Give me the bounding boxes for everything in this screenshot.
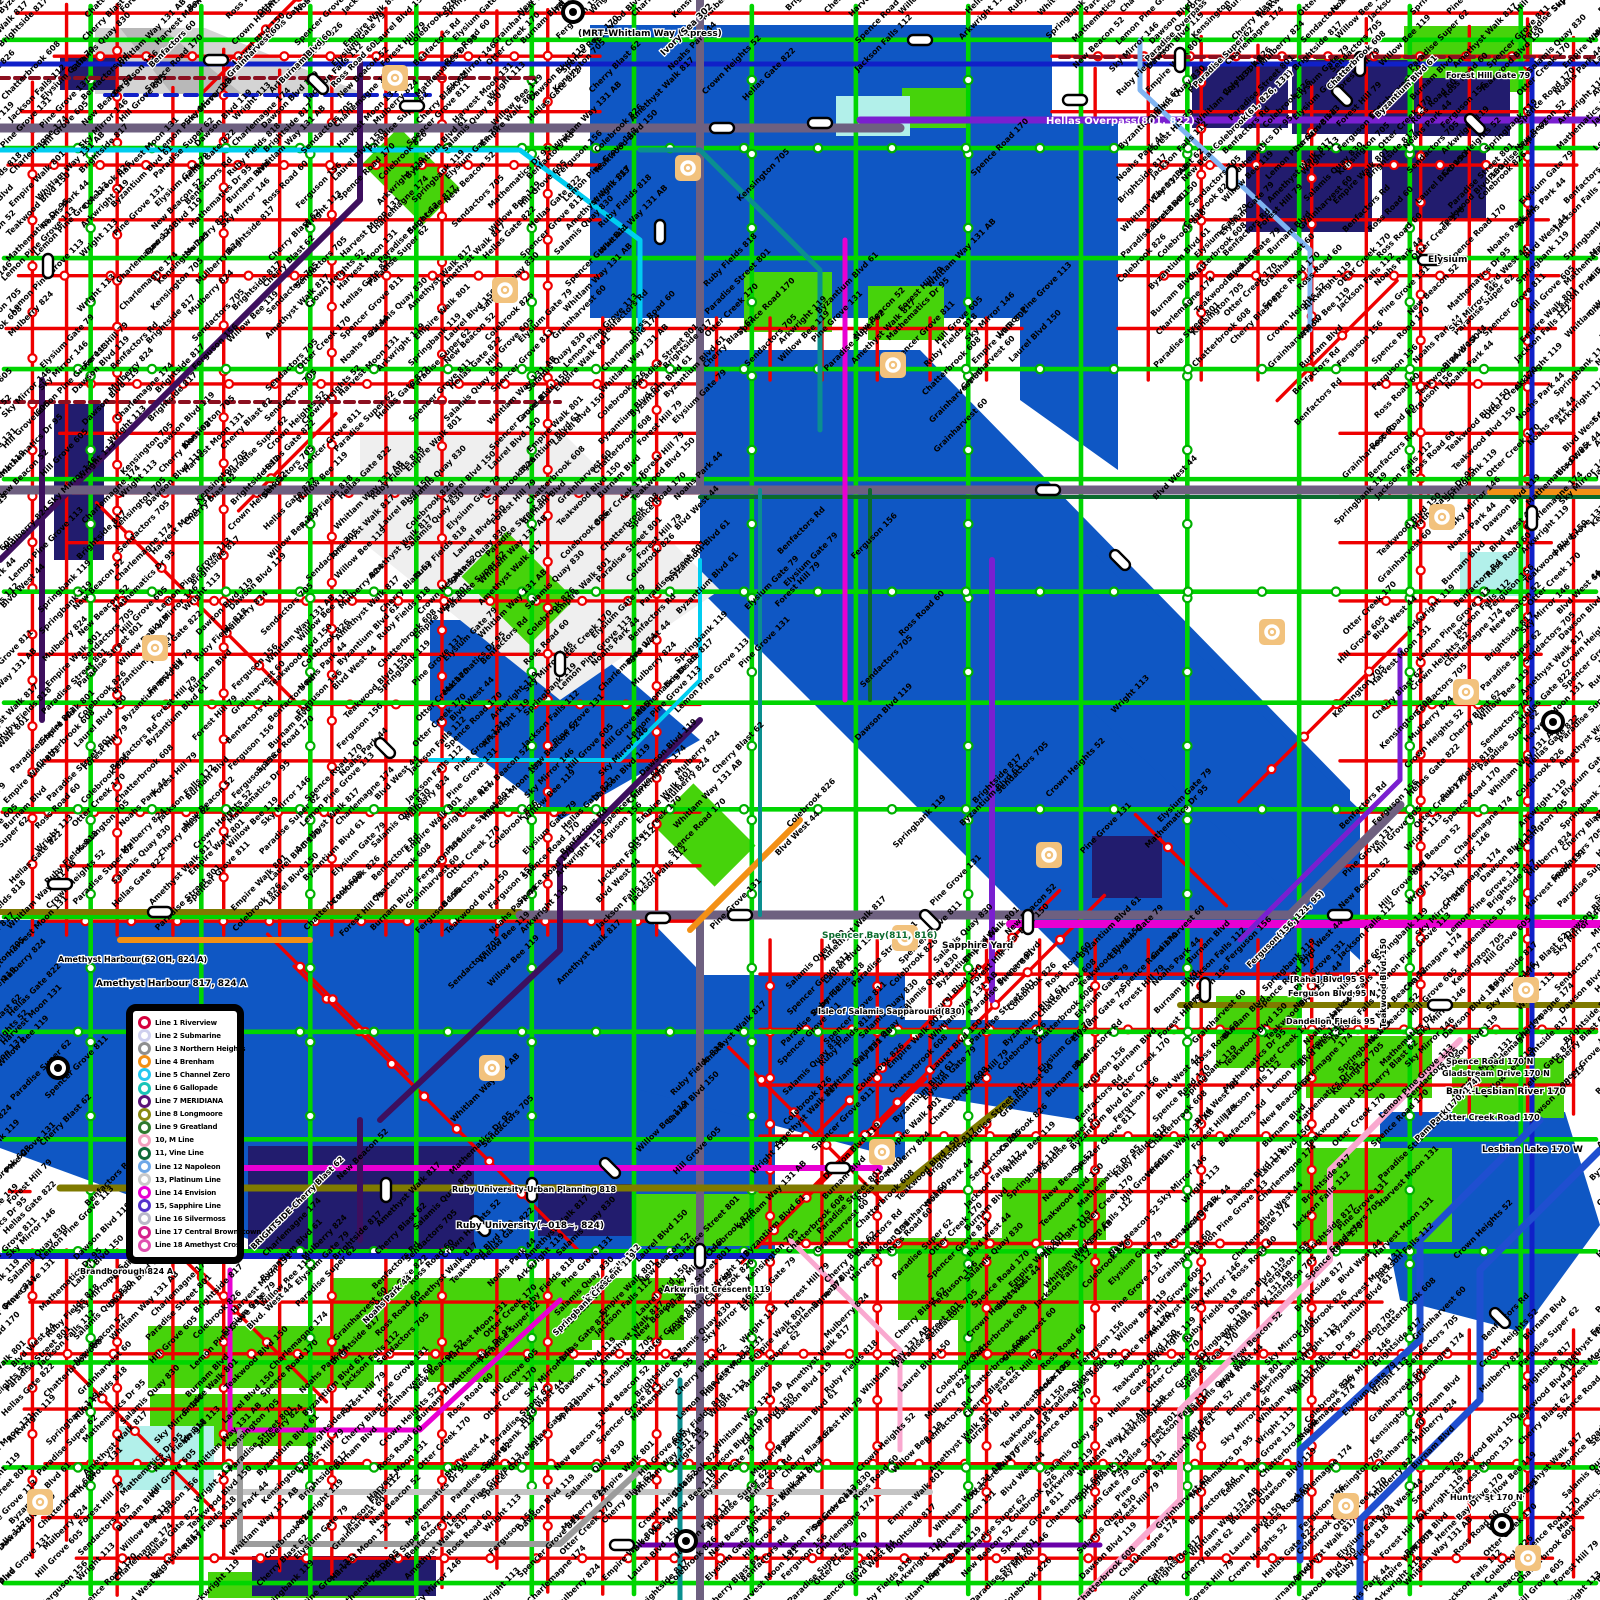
legend-line-icon	[138, 1147, 151, 1160]
place-label: Otter Creek Road 170	[1442, 1113, 1540, 1122]
roundel-icon	[676, 1531, 696, 1551]
interchange-capsule	[555, 652, 565, 676]
station-marker	[1268, 765, 1276, 773]
station-marker	[86, 446, 94, 454]
interchange-capsule	[808, 118, 832, 128]
station-marker	[438, 626, 446, 634]
roundel-core	[1498, 1521, 1506, 1529]
interchange-capsule	[381, 1178, 391, 1202]
yard-dot	[1344, 1504, 1348, 1508]
station-marker	[518, 1028, 526, 1036]
legend-panel: Line 1 RiverviewLine 2 SubmarineLine 3 N…	[126, 1004, 244, 1264]
station-marker	[363, 380, 371, 388]
legend-line-label: Line 2 Submarine	[155, 1032, 221, 1040]
yard-dot	[1047, 853, 1051, 857]
station-marker	[1332, 805, 1340, 813]
interchange-capsule	[400, 101, 424, 111]
station-marker	[1258, 365, 1266, 373]
station-marker	[28, 538, 36, 546]
station-marker	[1308, 1396, 1316, 1404]
roundel-icon	[1492, 1515, 1512, 1535]
station-marker	[28, 1430, 36, 1438]
station-marker	[1406, 1260, 1414, 1268]
place-label: Isle of Salamis Sapparound(830)	[818, 1007, 965, 1016]
station-marker	[1308, 174, 1316, 182]
legend-line-label: Line 1 Riverview	[155, 1019, 217, 1027]
legend-line-icon	[138, 1042, 151, 1055]
station-marker	[964, 520, 972, 528]
station-marker	[578, 597, 586, 605]
station-marker	[28, 354, 36, 362]
station-marker	[1036, 365, 1044, 373]
station-marker	[96, 52, 104, 60]
station-marker	[964, 76, 972, 84]
station-marker	[444, 1028, 452, 1036]
station-marker	[1417, 428, 1425, 436]
station-marker	[306, 964, 314, 972]
station-marker	[1406, 742, 1414, 750]
station-marker	[296, 1028, 304, 1036]
station-marker	[748, 1112, 756, 1120]
legend-item: Line 16 Silvermoss	[138, 1212, 233, 1225]
station-marker	[1406, 446, 1414, 454]
legend-line-label: Line 3 Northern Heights	[155, 1045, 245, 1053]
legend-line-icon	[138, 1199, 151, 1212]
station-marker	[964, 1112, 972, 1120]
legend-item: Line 12 Napoleon	[138, 1160, 233, 1173]
roundel-icon	[48, 1058, 68, 1078]
interchange-capsule	[1428, 1000, 1452, 1010]
station-marker	[962, 365, 970, 373]
station-marker	[1308, 1166, 1316, 1174]
legend-line-icon	[138, 1226, 151, 1239]
station-marker	[1183, 742, 1191, 750]
legend-item: Line 1 Riverview	[138, 1016, 233, 1029]
station-marker	[964, 446, 972, 454]
station-marker	[1184, 1028, 1192, 1036]
interchange-capsule	[1328, 910, 1352, 920]
legend-item: Line 18 Amethyst Cross	[138, 1239, 233, 1252]
station-marker	[64, 1350, 72, 1358]
station-marker	[328, 717, 336, 725]
place-label: Teakwood Blvd. 150	[1379, 938, 1388, 1028]
legend-line-label: Line 7 MERIDIANA	[155, 1097, 223, 1105]
station-marker	[1197, 1442, 1205, 1450]
yard-dot	[1270, 630, 1274, 634]
station-marker	[306, 890, 314, 898]
station-marker	[873, 1350, 881, 1358]
yard-dot	[393, 76, 397, 80]
station-marker	[280, 52, 288, 60]
place-label: [Raha] Blvd 95 S	[1290, 975, 1365, 984]
station-marker	[1184, 588, 1192, 596]
legend-line-icon	[138, 1173, 151, 1186]
station-marker	[1110, 365, 1118, 373]
yard-icon	[1513, 977, 1539, 1003]
interchange-capsule	[1023, 910, 1033, 934]
legend-item: 11, Vine Line	[138, 1147, 233, 1160]
station-marker	[148, 365, 156, 373]
place-label: Forest Hill Gate 79	[1446, 71, 1531, 80]
place-label: Amethyst Harbour 817, 824 A	[96, 979, 247, 989]
yard-dot	[880, 1150, 884, 1154]
station-marker	[438, 672, 446, 680]
station-marker	[475, 272, 483, 280]
station-marker	[1024, 968, 1032, 976]
station-marker	[113, 829, 121, 837]
interchange-capsule	[148, 907, 172, 917]
yard-dot	[503, 288, 507, 292]
legend-line-icon	[138, 1029, 151, 1042]
transit-map[interactable]: Paradise Street 801Byzantium Blvd 61Chat…	[0, 0, 1600, 1600]
legend-line-label: 13, Platinum Line	[155, 1176, 221, 1184]
station-marker	[61, 272, 69, 280]
place-label: Ruby University(~018~, 824)	[456, 1221, 604, 1231]
legend-line-label: Line 12 Napoleon	[155, 1163, 220, 1171]
legend-line-icon	[138, 1186, 151, 1199]
place-label: Hellas Overpass(801, 822)	[1046, 116, 1195, 127]
legend-line-icon	[138, 1160, 151, 1173]
station-marker	[544, 282, 552, 290]
station-marker	[432, 1350, 440, 1358]
station-marker	[1164, 843, 1172, 851]
station-marker	[748, 372, 756, 380]
station-marker	[317, 380, 325, 388]
station-marker	[740, 805, 748, 813]
legend-line-label: Line 16 Silvermoss	[155, 1215, 226, 1223]
place-label: Elysium	[1428, 255, 1467, 265]
station-marker	[1406, 1186, 1414, 1194]
station-marker	[964, 1186, 972, 1194]
station-marker	[1036, 144, 1044, 152]
station-marker	[544, 1522, 552, 1530]
yard-icon	[880, 352, 906, 378]
station-marker	[748, 1038, 756, 1046]
station-marker	[1168, 1350, 1176, 1358]
place-label: Arkwright Crescent 119	[664, 1285, 771, 1294]
station-marker	[1417, 796, 1425, 804]
station-marker	[964, 668, 972, 676]
station-marker	[964, 742, 972, 750]
station-marker	[1390, 161, 1398, 169]
station-marker	[420, 1092, 428, 1100]
station-marker	[464, 52, 472, 60]
interchange-capsule	[43, 254, 53, 278]
roundel-icon	[1543, 712, 1563, 732]
station-marker	[438, 1338, 446, 1346]
station-marker	[592, 1028, 600, 1036]
station-marker	[1417, 566, 1425, 574]
station-marker	[328, 1292, 336, 1300]
legend-item: Line 17 Central Brownstown	[138, 1226, 233, 1239]
roundel-core	[569, 8, 577, 16]
legend-line-icon	[138, 1121, 151, 1134]
station-marker	[962, 1463, 970, 1471]
station-marker	[544, 190, 552, 198]
yard-icon	[382, 65, 408, 91]
station-marker	[528, 1334, 536, 1342]
station-marker	[438, 1292, 446, 1300]
station-marker	[528, 1112, 536, 1120]
legend-item: Line 7 MERIDIANA	[138, 1095, 233, 1108]
station-marker	[544, 1476, 552, 1484]
station-marker	[370, 1028, 378, 1036]
interchange-capsule	[1227, 166, 1237, 190]
interchange-capsule	[728, 910, 752, 920]
interchange-capsule	[908, 35, 932, 45]
legend-item: 10, M Line	[138, 1134, 233, 1147]
yard-icon	[869, 1139, 895, 1165]
station-marker	[740, 144, 748, 152]
station-marker	[438, 212, 446, 220]
station-marker	[748, 150, 756, 158]
station-marker	[210, 597, 218, 605]
station-marker	[653, 1430, 661, 1438]
interchange-capsule	[646, 913, 670, 923]
station-marker	[1474, 380, 1482, 388]
legend-line-icon	[138, 1016, 151, 1029]
station-marker	[328, 579, 336, 587]
station-marker	[528, 1038, 536, 1046]
place-label: Amethyst Harbour(62 OH, 824 A)	[58, 955, 207, 964]
station-marker	[1480, 365, 1488, 373]
station-marker	[28, 1292, 36, 1300]
station-marker	[86, 1112, 94, 1120]
yard-icon	[479, 1055, 505, 1081]
station-marker	[544, 1338, 552, 1346]
station-marker	[1183, 890, 1191, 898]
station-marker	[222, 365, 230, 373]
station-marker	[74, 1028, 82, 1036]
legend-line-label: 11, Vine Line	[155, 1149, 204, 1157]
legend-line-label: Line 18 Amethyst Cross	[155, 1241, 244, 1249]
station-marker	[1183, 668, 1191, 676]
station-marker	[1258, 805, 1266, 813]
station-marker	[893, 1098, 901, 1106]
map-canvas[interactable]: Paradise Street 801Byzantium Blvd 61Chat…	[0, 0, 1600, 1600]
station-marker	[388, 1060, 396, 1068]
station-marker	[1056, 936, 1064, 944]
place-label: Spence Road 170 N	[1446, 1057, 1533, 1066]
station-marker	[962, 588, 970, 596]
station-marker	[440, 1554, 448, 1562]
station-marker	[1110, 588, 1118, 596]
interchange-capsule	[826, 1163, 850, 1173]
place-label: Ferguson Blvd 95 N	[1288, 989, 1376, 998]
station-marker	[296, 963, 304, 971]
yard-icon	[27, 1489, 53, 1515]
station-marker	[306, 1112, 314, 1120]
station-marker	[544, 466, 552, 474]
legend-line-label: Line 6 Gallopade	[155, 1084, 218, 1092]
station-marker	[814, 144, 822, 152]
legend-line-icon	[138, 1082, 151, 1095]
station-marker	[1480, 805, 1488, 813]
station-marker	[306, 1038, 314, 1046]
legend-line-icon	[138, 1239, 151, 1252]
station-marker	[245, 272, 253, 280]
interchange-capsule	[1527, 506, 1537, 530]
legend-item: 13, Platinum Line	[138, 1173, 233, 1186]
station-marker	[220, 229, 228, 237]
station-marker	[28, 262, 36, 270]
station-marker	[510, 161, 518, 169]
station-marker	[766, 1212, 774, 1220]
roundel-icon	[563, 2, 583, 22]
station-marker	[1183, 816, 1191, 824]
station-marker	[220, 689, 228, 697]
legend-line-label: Line 4 Brenham	[155, 1058, 214, 1066]
station-marker	[766, 982, 774, 990]
station-marker	[328, 349, 336, 357]
roundel-core	[1549, 718, 1557, 726]
station-marker	[748, 446, 756, 454]
station-marker	[757, 1076, 765, 1084]
station-marker	[766, 1120, 774, 1128]
station-marker	[328, 303, 336, 311]
legend-item: Line 8 Longmoore	[138, 1108, 233, 1121]
station-marker	[888, 805, 896, 813]
station-marker	[86, 964, 94, 972]
station-marker	[1406, 964, 1414, 972]
legend-line-icon	[138, 1212, 151, 1225]
station-marker	[1183, 446, 1191, 454]
yard-dot	[686, 166, 690, 170]
station-marker	[220, 505, 228, 513]
station-marker	[846, 1350, 854, 1358]
station-marker	[306, 742, 314, 750]
station-marker	[133, 380, 141, 388]
legend-line-icon	[138, 1134, 151, 1147]
yard-icon	[1453, 679, 1479, 705]
station-marker	[800, 1350, 808, 1358]
station-marker	[544, 558, 552, 566]
legend-line-label: 15, Sapphire Line	[155, 1202, 221, 1210]
yard-dot	[891, 363, 895, 367]
station-marker	[1332, 588, 1340, 596]
station-marker	[96, 161, 104, 169]
station-marker	[888, 588, 896, 596]
place-label: Brandborough 824 A	[80, 1267, 174, 1276]
legend-item: Line 3 Northern Heights	[138, 1042, 233, 1055]
station-marker	[510, 52, 518, 60]
station-marker	[1308, 1304, 1316, 1312]
interchange-capsule	[695, 1244, 705, 1268]
station-marker	[983, 1442, 991, 1450]
station-marker	[28, 722, 36, 730]
station-marker	[544, 52, 552, 60]
yard-dot	[1464, 690, 1468, 694]
station-marker	[453, 1125, 461, 1133]
interchange-capsule	[204, 55, 228, 65]
legend-item: 15, Sapphire Line	[138, 1199, 233, 1212]
station-marker	[485, 1157, 493, 1165]
station-marker	[1184, 365, 1192, 373]
station-marker	[873, 1304, 881, 1312]
legend-item: Line 14 Envision	[138, 1186, 233, 1199]
station-marker	[1197, 171, 1205, 179]
station-marker	[1091, 1304, 1099, 1312]
interchange-capsule	[1175, 48, 1185, 72]
place-label: Sapphire Yard	[942, 941, 1013, 951]
place-label: Dandelion Fields 95	[1286, 1017, 1376, 1026]
yard-icon	[1036, 842, 1062, 868]
legend-line-icon	[138, 1095, 151, 1108]
legend-line-label: 10, M Line	[155, 1136, 194, 1144]
place-label: Gladstream Drive 170 N	[1442, 1069, 1550, 1078]
place-label: (MRT–Whitlam Way Express)	[578, 29, 722, 39]
yard-dot	[490, 1066, 494, 1070]
station-marker	[766, 1074, 774, 1082]
station-marker	[1036, 588, 1044, 596]
station-marker	[225, 380, 233, 388]
station-marker	[873, 1396, 881, 1404]
yard-dot	[38, 1500, 42, 1504]
yard-dot	[153, 646, 157, 650]
legend-item: Line 6 Gallopade	[138, 1081, 233, 1094]
station-marker	[653, 728, 661, 736]
yard-icon	[1429, 504, 1455, 530]
station-marker	[592, 588, 600, 596]
station-marker	[1216, 1240, 1224, 1248]
place-label: Ruby University-Urban Planning 818	[452, 1185, 616, 1194]
station-marker	[544, 650, 552, 658]
station-marker	[1258, 588, 1266, 596]
station-marker	[210, 1554, 218, 1562]
station-marker	[1480, 1247, 1488, 1255]
station-marker	[740, 588, 748, 596]
station-marker	[748, 964, 756, 972]
yard-icon	[1515, 1545, 1541, 1571]
station-marker	[328, 211, 336, 219]
yard-dot	[1440, 515, 1444, 519]
station-marker	[329, 995, 337, 1003]
legend-line-icon	[138, 1055, 151, 1068]
yard-icon	[142, 635, 168, 661]
station-marker	[888, 144, 896, 152]
legend-line-icon	[138, 1068, 151, 1081]
interchange-capsule	[655, 220, 665, 244]
interchange-capsule	[610, 1540, 634, 1550]
yard-dot	[1526, 1556, 1530, 1560]
station-marker	[748, 816, 756, 824]
yard-icon	[1333, 1493, 1359, 1519]
legend-line-label: Line 14 Envision	[155, 1189, 216, 1197]
station-marker	[992, 1554, 1000, 1562]
station-marker	[666, 1028, 674, 1036]
station-marker	[528, 1482, 536, 1490]
station-marker	[964, 890, 972, 898]
legend-item: Line 2 Submarine	[138, 1029, 233, 1042]
legend-item: Line 4 Brenham	[138, 1055, 233, 1068]
station-marker	[1091, 1396, 1099, 1404]
station-marker	[962, 144, 970, 152]
station-marker	[1184, 1463, 1192, 1471]
yard-dot	[1524, 988, 1528, 992]
station-marker	[1036, 805, 1044, 813]
yard-icon	[675, 155, 701, 181]
station-marker	[370, 805, 378, 813]
legend-line-label: Line 5 Channel Zero	[155, 1071, 230, 1079]
station-marker	[328, 533, 336, 541]
interchange-capsule	[1200, 978, 1210, 1002]
interchange-capsule	[1063, 95, 1087, 105]
station-marker	[1183, 520, 1191, 528]
place-label: Spencer Bay(811, 816)	[822, 931, 937, 941]
station-marker	[814, 588, 822, 596]
legend-line-icon	[138, 1108, 151, 1121]
interchange-capsule	[710, 123, 734, 133]
